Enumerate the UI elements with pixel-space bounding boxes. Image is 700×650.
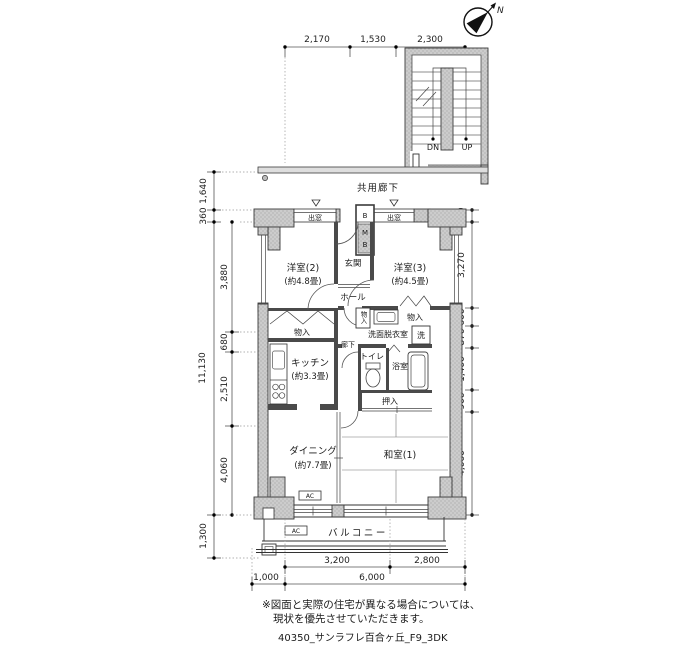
stair-core-wall [441,68,453,150]
dim-left-11130: 11,130 [198,352,208,384]
washbasin [374,310,398,324]
room-western2-name: 洋室(2) [287,262,319,274]
dim-bottom-3200: 3,200 [324,556,350,566]
ac-balcony-label: AC [292,528,300,535]
ac-unit-balcony: AC [285,526,307,535]
pipe-space-box [263,508,274,519]
dim-left-1300: 1,300 [199,523,209,549]
window-west-bedroom2 [262,235,266,303]
hallway-label: 廊下 [341,340,355,349]
room-genkan-label: 玄関 [344,258,361,269]
file-label: 40350_サンラフレ百合ヶ丘_F9_3DK [278,631,448,644]
bay-window-right: 出窓 [374,200,414,222]
room-western2-area: (約4.8畳) [284,276,321,287]
bay-window-left: 出窓 [294,200,336,222]
floor-plan-svg: N 2,170 1,530 2,300 [0,0,700,650]
washer-label: 洗 [417,330,425,340]
room-western3-area: (約4.5畳) [391,276,428,287]
room-western3-name: 洋室(3) [394,262,426,274]
balcony-sliding-windows [294,505,428,517]
bathtub [408,352,428,390]
bath-label: 浴室 [392,361,408,371]
room-kitchen-area: (約3.3畳) [291,371,328,382]
stairwell: DN UP [405,48,488,184]
dim-left-3880: 3,880 [220,264,230,290]
dim-bottom-6000: 6,000 [359,573,385,583]
dim-left-360: 360 [199,207,209,224]
dim-left-680: 680 [220,333,230,350]
bay-window-right-label: 出窓 [387,213,401,222]
shared-corridor-label: 共用廊下 [357,182,399,194]
dim-top-3: 2,300 [417,35,443,45]
washroom-label: 洗面脱衣室 [368,329,408,339]
note-line1: ※図面と実際の住宅が異なる場合については、 [262,598,480,611]
shared-corridor: 共用廊下 [258,167,488,194]
ac-dining-label: AC [306,493,314,500]
north-compass-icon: N [464,3,504,37]
mb-letter-b2: B [363,241,368,249]
dim-top-1: 2,170 [304,35,330,45]
genkan-step [338,285,370,288]
notes-block: ※図面と実際の住宅が異なる場合については、 現状を優先させていただきます。 40… [262,598,480,644]
dim-left-1640: 1,640 [199,178,209,204]
dim-bottom-1000: 1,000 [253,573,279,583]
closet-small-label: 物入 [359,310,367,325]
closet-right-label: 物入 [407,312,423,322]
oshiire-label: 押入 [382,396,398,406]
ac-unit-dining: AC [299,491,321,500]
floor-plan-page: N 2,170 1,530 2,300 [0,0,700,650]
bay-window-left-label: 出窓 [308,213,322,222]
note-line2: 現状を優先させていただきます。 [273,612,429,625]
toilet-fixture [366,363,380,387]
stair-down-label: DN [427,143,439,152]
dim-left-4060: 4,060 [220,457,230,483]
mb-letter-b1: B [363,212,368,220]
stair-up-label: UP [462,143,473,152]
north-label: N [497,6,504,16]
mb-letter-m: M [362,229,368,237]
dim-left-2510: 2,510 [220,376,230,402]
room-hall-label: ホール [340,293,366,303]
corridor-post [262,175,267,180]
balcony-label: バルコニー [328,528,388,539]
dim-top-2: 1,530 [360,35,386,45]
room-dining-name: ダイニング [289,445,337,457]
room-kitchen-name: キッチン [291,358,329,369]
fixtures [270,308,430,404]
closet-left-label: 物入 [294,327,310,337]
dim-bottom-2800: 2,800 [414,556,440,566]
room-dining-area: (約7.7畳) [294,460,331,471]
kitchen-counter [270,344,287,404]
room-washitsu-label: 和室(1) [384,449,416,461]
toilet-label: トイレ [360,352,384,361]
room-labels: 洋室(2) (約4.8畳) 洋室(3) (約4.5畳) 玄関 ホール 物入 物入… [284,258,428,471]
